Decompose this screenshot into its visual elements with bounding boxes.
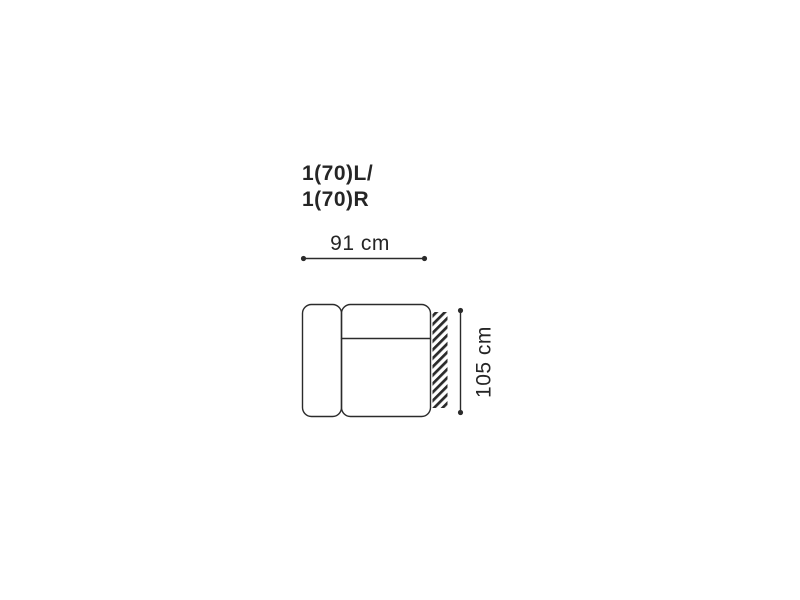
width-dimension-label: 91 cm [330, 232, 390, 255]
width-dim-left-dot [301, 256, 306, 261]
furniture-dimension-diagram: 1(70)L/ 1(70)R 91 cm 105 cm [0, 0, 800, 600]
module-code-line-1: 1(70)L/ [302, 162, 373, 185]
module-code-line-2: 1(70)R [302, 188, 369, 211]
connection-hatch-strip [433, 312, 448, 408]
furniture-module-diagram-page: 1(70)L/ 1(70)R 91 cm 105 cm [0, 0, 800, 600]
height-dim-top-dot [458, 308, 463, 313]
height-dimension: 105 cm [473, 326, 496, 398]
height-dim-bottom-dot [458, 410, 463, 415]
page-background [0, 0, 800, 600]
width-dim-right-dot [422, 256, 427, 261]
height-dimension-label: 105 cm [473, 326, 496, 398]
width-dimension: 91 cm [330, 232, 390, 255]
